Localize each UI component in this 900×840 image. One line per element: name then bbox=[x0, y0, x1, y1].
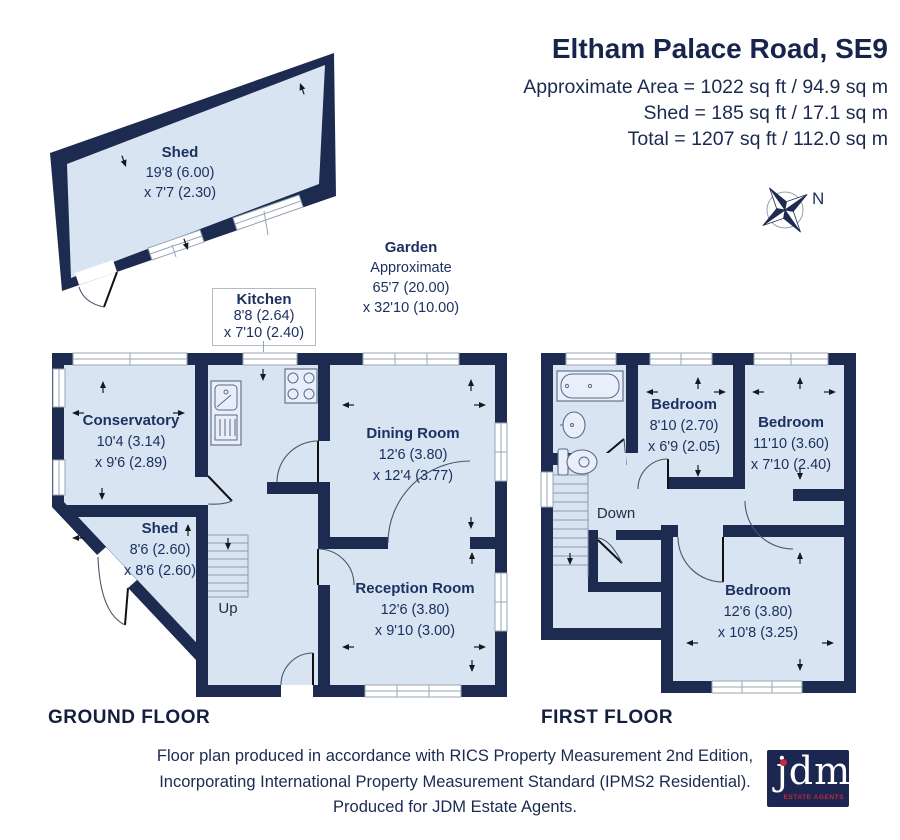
gf-wall bbox=[64, 505, 208, 517]
front-door-gap bbox=[281, 685, 313, 697]
page-title: Eltham Palace Road, SE9 bbox=[523, 34, 888, 64]
kitchen-dim2: x 7'10 (2.40) bbox=[213, 325, 315, 342]
stove-icon bbox=[285, 369, 317, 403]
bedroom1-name: Bedroom bbox=[651, 396, 717, 413]
total-area-line: Total = 1207 sq ft / 112.0 sq m bbox=[523, 126, 888, 152]
shed-room-name: Shed bbox=[162, 144, 199, 161]
gf-shed-dim1: 8'6 (2.60) bbox=[130, 542, 191, 558]
kitchen-sink-icon bbox=[211, 381, 241, 445]
reception-room-dim1: 12'6 (3.80) bbox=[381, 602, 450, 618]
window-icon bbox=[495, 573, 507, 631]
shed-door-arc bbox=[79, 287, 104, 307]
bedroom2-dim2: x 7'10 (2.40) bbox=[751, 457, 831, 473]
north-label: N bbox=[812, 189, 824, 208]
down-label: Down bbox=[597, 505, 635, 522]
bedroom2-name: Bedroom bbox=[758, 414, 824, 431]
footer-line1: Floor plan produced in accordance with R… bbox=[90, 744, 820, 770]
gf-wall bbox=[196, 517, 208, 655]
first-floor-plan: Bedroom 8'10 (2.70) x 6'9 (2.05) Bedroom… bbox=[538, 347, 863, 707]
gf-wall bbox=[318, 494, 330, 549]
footer-disclaimer: Floor plan produced in accordance with R… bbox=[90, 744, 820, 821]
up-label: Up bbox=[218, 600, 237, 617]
window-icon bbox=[650, 353, 712, 365]
jdm-logo-word: jdm bbox=[776, 743, 851, 800]
shed-door-leaf bbox=[104, 272, 117, 307]
gf-wall bbox=[470, 537, 495, 549]
gf-wall bbox=[267, 482, 330, 494]
ff-wall bbox=[661, 537, 673, 681]
gf-wall bbox=[195, 365, 208, 477]
compass-rose: N bbox=[752, 172, 852, 257]
header: Eltham Palace Road, SE9 Approximate Area… bbox=[523, 34, 888, 152]
window-icon bbox=[495, 423, 507, 481]
window-icon bbox=[243, 353, 297, 365]
conservatory-dim2: x 9'6 (2.89) bbox=[95, 455, 167, 471]
garden-label: Garden Approximate 65'7 (20.00) x 32'10 … bbox=[330, 238, 492, 318]
bedroom3-dim1: 12'6 (3.80) bbox=[724, 604, 793, 620]
ff-wall bbox=[733, 365, 745, 489]
garden-name: Garden bbox=[330, 238, 492, 258]
garden-line1: Approximate bbox=[330, 258, 492, 278]
window-icon bbox=[541, 472, 553, 507]
ff-wall bbox=[626, 365, 638, 453]
dining-room-dim1: 12'6 (3.80) bbox=[379, 447, 448, 463]
ground-floor-caption: GROUND FLOOR bbox=[48, 707, 210, 729]
bedroom2-dim1: 11'10 (3.60) bbox=[753, 436, 829, 452]
compass-star-icon bbox=[752, 172, 823, 247]
gf-shed-door-leaf bbox=[125, 588, 128, 625]
jdm-logo-tagline: ESTATE AGENTS bbox=[784, 794, 844, 801]
first-floor-caption: FIRST FLOOR bbox=[541, 707, 673, 729]
window-icon bbox=[363, 353, 459, 365]
conservatory-dim1: 10'4 (3.14) bbox=[97, 434, 166, 450]
kitchen-callout-box: Kitchen 8'8 (2.64) x 7'10 (2.40) bbox=[212, 288, 316, 346]
garden-line2: 65'7 (20.00) bbox=[330, 278, 492, 298]
reception-room-name: Reception Room bbox=[355, 580, 474, 597]
ff-wall bbox=[588, 582, 665, 592]
floorplan-page: Eltham Palace Road, SE9 Approximate Area… bbox=[0, 0, 900, 840]
kitchen-dim1: 8'8 (2.64) bbox=[213, 308, 315, 325]
kitchen-name: Kitchen bbox=[213, 291, 315, 308]
bathtub-icon bbox=[557, 371, 623, 401]
shed-room-dim1: 19'8 (6.00) bbox=[146, 165, 215, 181]
gf-wall bbox=[330, 537, 388, 549]
window-icon bbox=[566, 353, 616, 365]
ff-door-gap bbox=[745, 489, 793, 501]
jdm-logo: jdm ESTATE AGENTS bbox=[767, 750, 849, 807]
gf-shed-dim2: x 8'6 (2.60) bbox=[124, 563, 196, 579]
ff-wall bbox=[668, 477, 745, 489]
approx-area-line: Approximate Area = 1022 sq ft / 94.9 sq … bbox=[523, 74, 888, 100]
window-icon bbox=[712, 681, 802, 693]
shed-area-line: Shed = 185 sq ft / 17.1 sq m bbox=[523, 100, 888, 126]
window-icon bbox=[754, 353, 828, 365]
bedroom1-dim1: 8'10 (2.70) bbox=[650, 418, 719, 434]
bedroom3-name: Bedroom bbox=[725, 582, 791, 599]
window-icon bbox=[53, 460, 65, 495]
bedroom3-dim2: x 10'8 (3.25) bbox=[718, 625, 798, 641]
gf-wall bbox=[318, 585, 330, 685]
garden-line3: x 32'10 (10.00) bbox=[330, 298, 492, 318]
footer-line3: Produced for JDM Estate Agents. bbox=[90, 795, 820, 821]
gf-shed-name: Shed bbox=[142, 520, 179, 537]
ff-door-gap bbox=[593, 453, 626, 465]
toilet-icon bbox=[558, 449, 597, 475]
bedroom1-dim2: x 6'9 (2.05) bbox=[648, 439, 720, 455]
ff-door-gap bbox=[678, 525, 723, 537]
dining-room-name: Dining Room bbox=[366, 425, 459, 442]
footer-line2: Incorporating International Property Mea… bbox=[90, 770, 820, 796]
dining-room-dim2: x 12'4 (3.77) bbox=[373, 468, 453, 484]
gf-wall bbox=[318, 365, 330, 441]
ff-wall bbox=[793, 489, 844, 501]
ground-floor-plan: Conservatory 10'4 (3.14) x 9'6 (2.89) Sh… bbox=[45, 345, 515, 707]
reception-room-dim2: x 9'10 (3.00) bbox=[375, 623, 455, 639]
window-icon bbox=[53, 369, 65, 407]
jdm-logo-dot-icon bbox=[780, 759, 787, 766]
ff-wall bbox=[616, 530, 661, 540]
window-icon bbox=[365, 685, 461, 697]
conservatory-name: Conservatory bbox=[83, 412, 180, 429]
shed-room-dim2: x 7'7 (2.30) bbox=[144, 185, 216, 201]
window-icon bbox=[73, 353, 187, 365]
